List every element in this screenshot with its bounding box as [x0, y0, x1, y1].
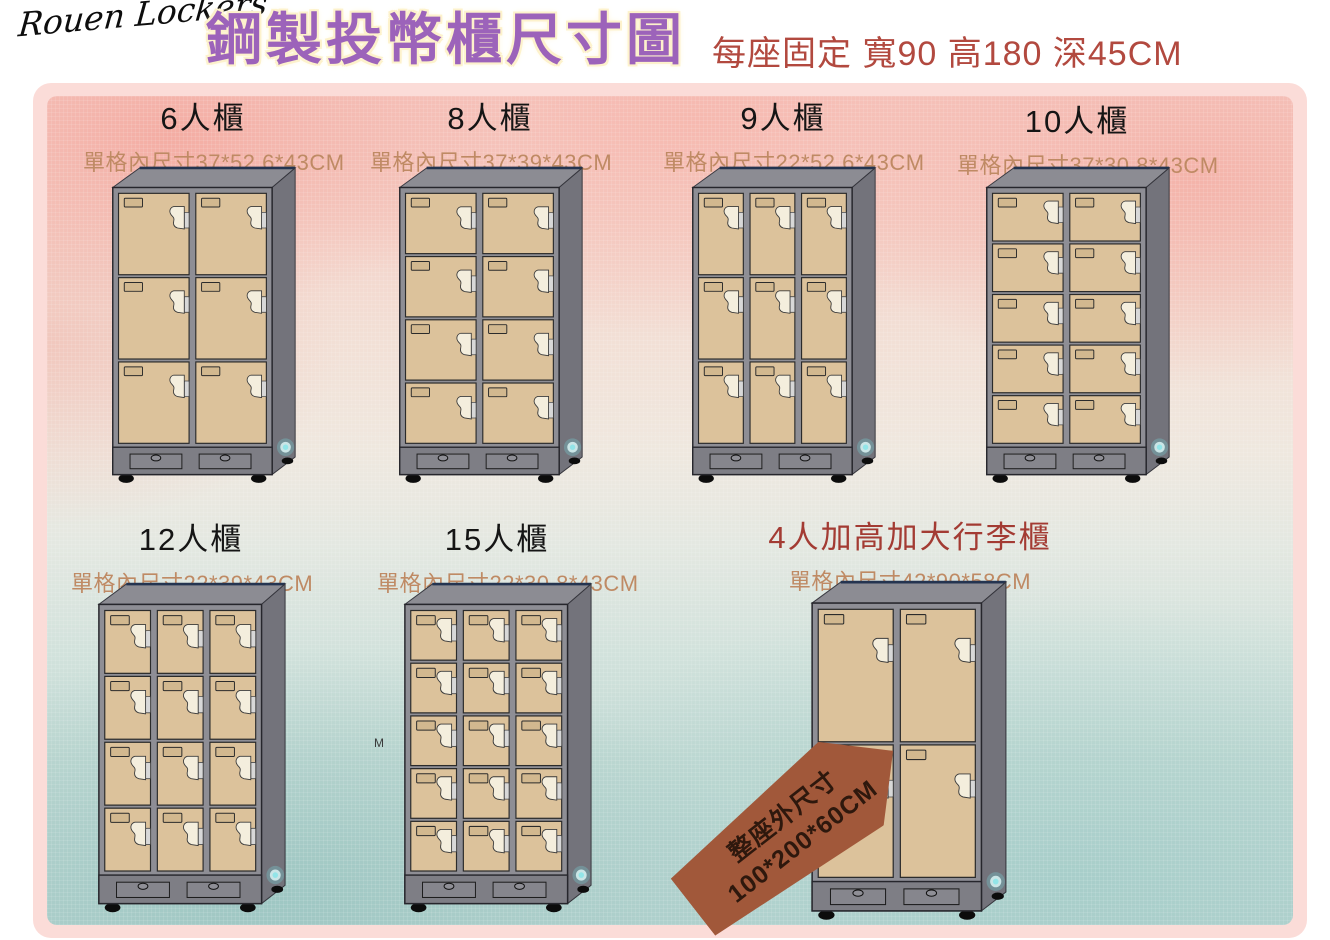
locker-door	[802, 362, 847, 443]
door-label-slot	[824, 615, 843, 624]
door-label-slot	[1076, 198, 1094, 207]
locker-door	[196, 362, 267, 443]
door-label-slot	[216, 681, 235, 690]
door-latch	[452, 625, 457, 641]
door-latch	[1136, 207, 1141, 223]
locker-door	[802, 278, 847, 359]
door-latch	[262, 381, 267, 397]
door-label-slot	[522, 668, 541, 677]
locker-title: 10人櫃	[957, 96, 1197, 141]
door-latch	[471, 402, 476, 418]
door-latch	[471, 213, 476, 229]
door-latch	[452, 783, 457, 799]
door-latch	[504, 625, 509, 641]
cabinet-foot	[1125, 474, 1140, 483]
door-latch	[549, 276, 554, 292]
cyan-badge-icon	[993, 879, 999, 885]
locker-drawing-15	[399, 582, 595, 928]
locker-door	[900, 609, 975, 741]
door-label-slot	[216, 616, 235, 625]
door-label-slot	[469, 826, 488, 835]
door-latch	[471, 276, 476, 292]
locker-figure-8	[394, 166, 586, 498]
door-latch	[790, 381, 795, 397]
door-label-slot	[756, 367, 774, 376]
locker-door	[1070, 295, 1141, 343]
cyan-badge-icon	[570, 444, 575, 449]
drawer-handle-icon	[151, 455, 161, 461]
locker-door	[411, 769, 457, 819]
cyan-badge-icon	[273, 872, 278, 878]
door-latch	[1058, 207, 1063, 223]
door-label-slot	[522, 774, 541, 783]
locker-door	[210, 742, 256, 805]
locker-section-9: 9人櫃 單格內尺寸22*52.6*43CM	[663, 93, 903, 177]
door-latch	[557, 836, 562, 852]
door-latch	[1136, 308, 1141, 324]
door-label-slot	[522, 616, 541, 625]
locker-door	[993, 345, 1064, 393]
cyan-badge-icon	[1157, 444, 1162, 449]
drawer-handle-icon	[731, 455, 741, 461]
cabinet-foot	[1156, 457, 1168, 464]
door-latch	[504, 730, 509, 746]
door-label-slot	[489, 325, 507, 334]
door-latch	[262, 297, 267, 313]
locker-door	[699, 362, 744, 443]
locker-door	[993, 295, 1064, 343]
locker-title: 12人櫃	[71, 514, 311, 559]
cabinet-top	[405, 584, 591, 604]
door-latch	[251, 697, 256, 713]
door-latch	[888, 645, 893, 662]
door-label-slot	[489, 198, 507, 207]
locker-door	[105, 742, 151, 805]
locker-door	[516, 769, 562, 819]
locker-figure-12	[93, 582, 289, 928]
locker-door	[1070, 193, 1141, 241]
locker-figure-9	[687, 166, 879, 498]
door-latch	[557, 783, 562, 799]
locker-door	[406, 320, 477, 380]
cabinet-foot	[105, 903, 121, 912]
locker-door	[105, 808, 151, 871]
locker-section-8: 8人櫃 單格內尺寸37*39*43CM	[370, 93, 610, 177]
door-label-slot	[704, 198, 722, 207]
door-label-slot	[807, 283, 825, 292]
cabinet-foot	[831, 474, 846, 483]
door-label-slot	[756, 283, 774, 292]
door-label-slot	[411, 198, 429, 207]
locker-door	[750, 278, 795, 359]
locker-door	[119, 278, 190, 359]
door-latch	[739, 297, 744, 313]
locker-section-6: 6人櫃 單格內尺寸37*52.6*43CM	[83, 93, 323, 177]
drawer-handle-icon	[853, 890, 863, 896]
cabinet-foot	[818, 910, 834, 919]
door-label-slot	[163, 747, 182, 756]
door-label-slot	[202, 367, 220, 376]
brand-logo: Rouen Lockers	[14, 0, 210, 81]
locker-title: 9人櫃	[663, 93, 903, 138]
door-label-slot	[411, 388, 429, 397]
locker-door	[993, 193, 1064, 241]
locker-door	[750, 362, 795, 443]
cabinet-foot	[992, 893, 1004, 900]
door-latch	[842, 381, 847, 397]
door-label-slot	[411, 325, 429, 334]
door-latch	[184, 381, 189, 397]
locker-drawing-12	[93, 582, 289, 928]
cyan-badge-icon	[863, 444, 868, 449]
locker-door	[157, 610, 203, 673]
page-subtitle: 每座固定 寬90 高180 深45CM	[712, 30, 1183, 78]
door-label-slot	[469, 774, 488, 783]
door-label-slot	[124, 367, 142, 376]
door-label-slot	[469, 721, 488, 730]
door-latch	[1136, 359, 1141, 375]
locker-door	[818, 609, 893, 741]
door-latch	[790, 212, 795, 228]
cabinet-side	[568, 584, 592, 904]
door-latch	[146, 697, 151, 713]
locker-door	[1070, 396, 1141, 444]
door-label-slot	[417, 668, 436, 677]
locker-door	[516, 821, 562, 871]
cabinet-foot	[993, 474, 1008, 483]
door-latch	[1058, 258, 1063, 274]
door-label-slot	[704, 367, 722, 376]
door-label-slot	[522, 826, 541, 835]
door-label-slot	[998, 249, 1016, 258]
door-latch	[557, 677, 562, 693]
door-label-slot	[111, 813, 130, 822]
cabinet-side	[559, 168, 582, 475]
drawer-handle-icon	[438, 455, 448, 461]
locker-door	[483, 320, 554, 380]
locker-door	[750, 193, 795, 274]
cabinet-side	[1146, 168, 1169, 475]
locker-door	[699, 278, 744, 359]
cabinet-side	[262, 584, 286, 904]
door-latch	[504, 836, 509, 852]
door-latch	[1058, 409, 1063, 425]
door-label-slot	[1076, 299, 1094, 308]
door-label-slot	[124, 198, 142, 207]
door-label-slot	[411, 261, 429, 270]
drawer-handle-icon	[800, 455, 810, 461]
drawer-handle-icon	[138, 883, 148, 889]
locker-door	[105, 676, 151, 739]
door-latch	[557, 730, 562, 746]
cabinet-top	[99, 584, 285, 604]
locker-door	[463, 663, 509, 713]
door-latch	[251, 828, 256, 844]
door-label-slot	[704, 283, 722, 292]
door-latch	[1058, 308, 1063, 324]
door-label-slot	[111, 747, 130, 756]
locker-door	[157, 676, 203, 739]
locker-door	[699, 193, 744, 274]
cabinet-side	[981, 582, 1005, 911]
door-label-slot	[163, 616, 182, 625]
door-label-slot	[111, 616, 130, 625]
cabinet-foot	[406, 474, 421, 483]
door-label-slot	[906, 750, 925, 759]
locker-drawing-9	[687, 166, 879, 498]
door-label-slot	[807, 367, 825, 376]
locker-door	[1070, 345, 1141, 393]
door-label-slot	[202, 283, 220, 292]
door-latch	[146, 631, 151, 647]
door-label-slot	[417, 616, 436, 625]
locker-door	[993, 396, 1064, 444]
cyan-badge-icon	[579, 872, 584, 878]
locker-door	[802, 193, 847, 274]
door-latch	[184, 297, 189, 313]
door-label-slot	[163, 813, 182, 822]
door-latch	[790, 297, 795, 313]
door-latch	[146, 762, 151, 778]
door-latch	[557, 625, 562, 641]
cabinet-side	[272, 168, 295, 475]
cabinet-foot	[569, 457, 581, 464]
door-latch	[184, 212, 189, 228]
door-latch	[146, 828, 151, 844]
cabinet-foot	[699, 474, 714, 483]
door-latch	[198, 697, 203, 713]
locker-title: 4人加高加大行李櫃	[730, 512, 1090, 557]
door-label-slot	[998, 299, 1016, 308]
cabinet-foot	[411, 903, 427, 912]
cabinet-foot	[577, 886, 589, 893]
locker-door	[900, 745, 975, 877]
door-latch	[842, 212, 847, 228]
door-latch	[549, 402, 554, 418]
door-label-slot	[1076, 401, 1094, 410]
door-label-slot	[1076, 249, 1094, 258]
door-label-slot	[417, 826, 436, 835]
cabinet-top	[400, 168, 582, 188]
door-latch	[739, 212, 744, 228]
locker-door	[411, 716, 457, 766]
locker-door	[516, 716, 562, 766]
door-label-slot	[163, 681, 182, 690]
locker-door	[196, 278, 267, 359]
locker-size-infographic: Rouen Lockers 鋼製投幣櫃尺寸圖 每座固定 寬90 高180 深45…	[0, 0, 1330, 940]
door-latch	[504, 677, 509, 693]
door-label-slot	[469, 616, 488, 625]
door-latch	[970, 645, 975, 662]
locker-door	[119, 362, 190, 443]
drawer-handle-icon	[926, 890, 936, 896]
drawer-handle-icon	[209, 883, 219, 889]
cabinet-foot	[119, 474, 134, 483]
locker-door	[483, 383, 554, 443]
door-latch	[504, 783, 509, 799]
locker-door	[406, 257, 477, 317]
door-latch	[251, 762, 256, 778]
door-label-slot	[111, 681, 130, 690]
door-label-slot	[998, 350, 1016, 359]
locker-door	[406, 383, 477, 443]
drawer-handle-icon	[1094, 455, 1104, 461]
cabinet-foot	[959, 910, 975, 919]
door-label-slot	[522, 721, 541, 730]
locker-figure-10	[981, 166, 1173, 498]
door-latch	[842, 297, 847, 313]
door-latch	[1136, 258, 1141, 274]
door-label-slot	[1076, 350, 1094, 359]
door-latch	[452, 677, 457, 693]
door-latch	[452, 730, 457, 746]
cabinet-top	[693, 168, 875, 188]
page-title: 鋼製投幣櫃尺寸圖	[206, 0, 686, 80]
locker-door	[483, 257, 554, 317]
drawer-handle-icon	[444, 883, 454, 889]
locker-title: 15人櫃	[377, 514, 617, 559]
stray-mark: M	[374, 736, 384, 750]
cabinet-foot	[546, 903, 562, 912]
door-latch	[198, 631, 203, 647]
door-label-slot	[998, 198, 1016, 207]
door-latch	[198, 828, 203, 844]
locker-door	[516, 663, 562, 713]
door-latch	[739, 381, 744, 397]
door-label-slot	[807, 198, 825, 207]
cabinet-foot	[538, 474, 553, 483]
locker-door	[463, 769, 509, 819]
locker-drawing-6	[107, 166, 299, 498]
locker-door	[993, 244, 1064, 292]
door-latch	[1058, 359, 1063, 375]
door-label-slot	[756, 198, 774, 207]
locker-door	[157, 808, 203, 871]
door-latch	[198, 762, 203, 778]
door-latch	[549, 213, 554, 229]
locker-door	[210, 610, 256, 673]
cabinet-foot	[251, 474, 266, 483]
locker-door	[411, 821, 457, 871]
locker-drawing-10	[981, 166, 1173, 498]
locker-door	[1070, 244, 1141, 292]
door-label-slot	[417, 774, 436, 783]
locker-door	[119, 193, 190, 274]
door-latch	[549, 339, 554, 355]
locker-title: 8人櫃	[370, 93, 610, 138]
locker-door	[406, 193, 477, 253]
locker-drawing-8	[394, 166, 586, 498]
door-latch	[471, 339, 476, 355]
door-latch	[251, 631, 256, 647]
door-label-slot	[906, 615, 925, 624]
locker-door	[483, 193, 554, 253]
door-label-slot	[998, 401, 1016, 410]
door-label-slot	[202, 198, 220, 207]
door-latch	[970, 780, 975, 797]
cabinet-foot	[282, 457, 294, 464]
cabinet-top	[113, 168, 295, 188]
drawer-handle-icon	[1025, 455, 1035, 461]
cabinet-top	[987, 168, 1169, 188]
locker-door	[105, 610, 151, 673]
locker-door	[196, 193, 267, 274]
locker-door	[210, 808, 256, 871]
cabinet-foot	[862, 457, 874, 464]
door-label-slot	[124, 283, 142, 292]
cyan-badge-icon	[283, 444, 288, 449]
locker-door	[463, 610, 509, 660]
cabinet-foot	[271, 886, 283, 893]
door-label-slot	[489, 261, 507, 270]
locker-door	[411, 663, 457, 713]
door-latch	[1136, 409, 1141, 425]
door-label-slot	[216, 747, 235, 756]
drawer-handle-icon	[515, 883, 525, 889]
door-label-slot	[216, 813, 235, 822]
locker-door	[157, 742, 203, 805]
cabinet-side	[852, 168, 875, 475]
locker-door	[411, 610, 457, 660]
door-label-slot	[469, 668, 488, 677]
locker-door	[463, 821, 509, 871]
cabinet-top	[812, 582, 1006, 603]
locker-title: 6人櫃	[83, 93, 323, 138]
door-latch	[452, 836, 457, 852]
drawer-handle-icon	[220, 455, 230, 461]
drawer-handle-icon	[507, 455, 517, 461]
locker-figure-15	[399, 582, 595, 928]
locker-door	[463, 716, 509, 766]
cabinet-foot	[240, 903, 256, 912]
door-label-slot	[489, 388, 507, 397]
locker-door	[516, 610, 562, 660]
door-latch	[262, 212, 267, 228]
locker-figure-6	[107, 166, 299, 498]
door-label-slot	[417, 721, 436, 730]
locker-door	[210, 676, 256, 739]
